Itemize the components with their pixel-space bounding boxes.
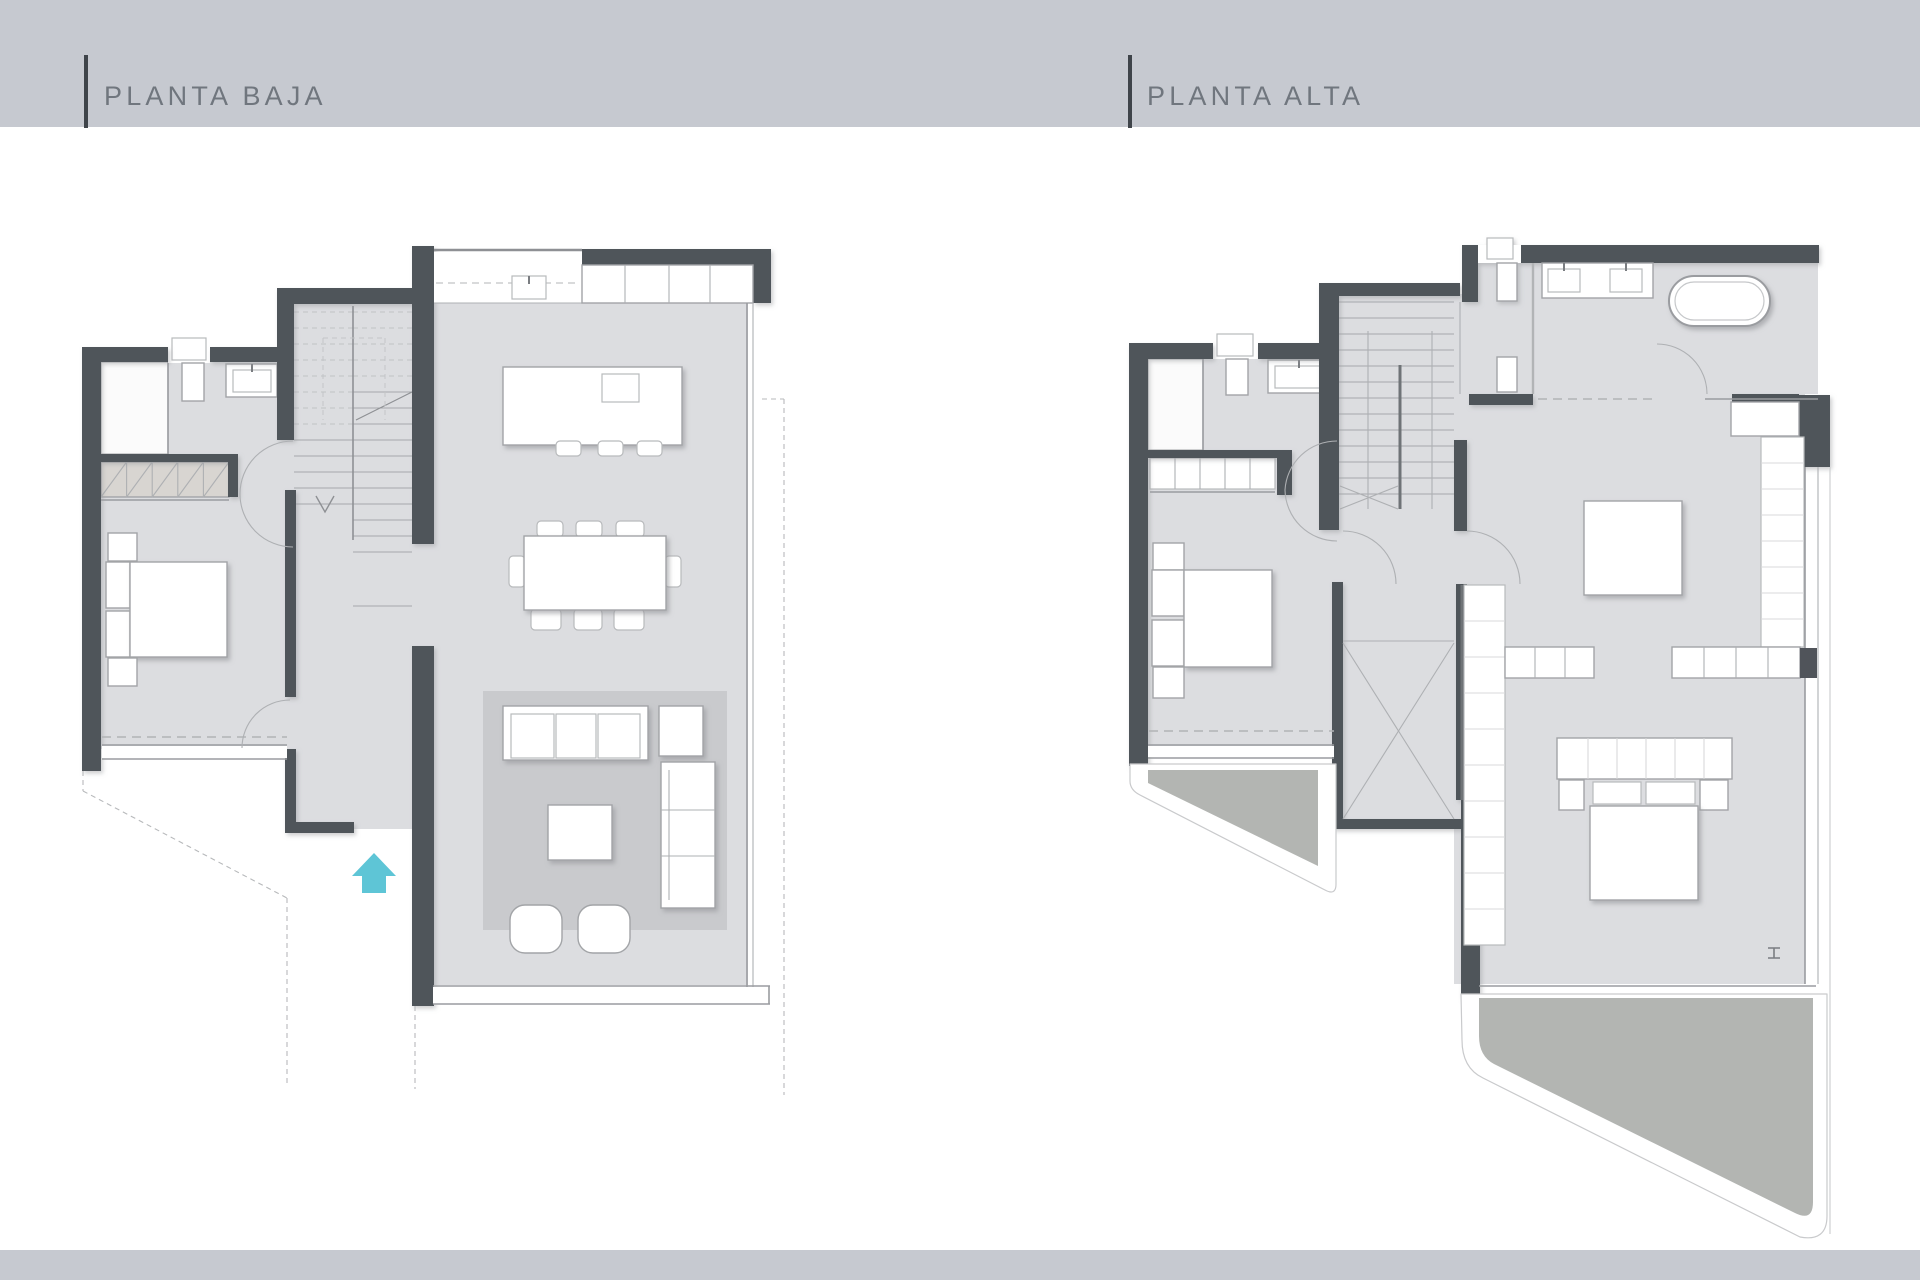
svg-text:PLANTA ALTA: PLANTA ALTA: [1147, 81, 1364, 111]
svg-text:PLANTA BAJA: PLANTA BAJA: [104, 81, 327, 111]
